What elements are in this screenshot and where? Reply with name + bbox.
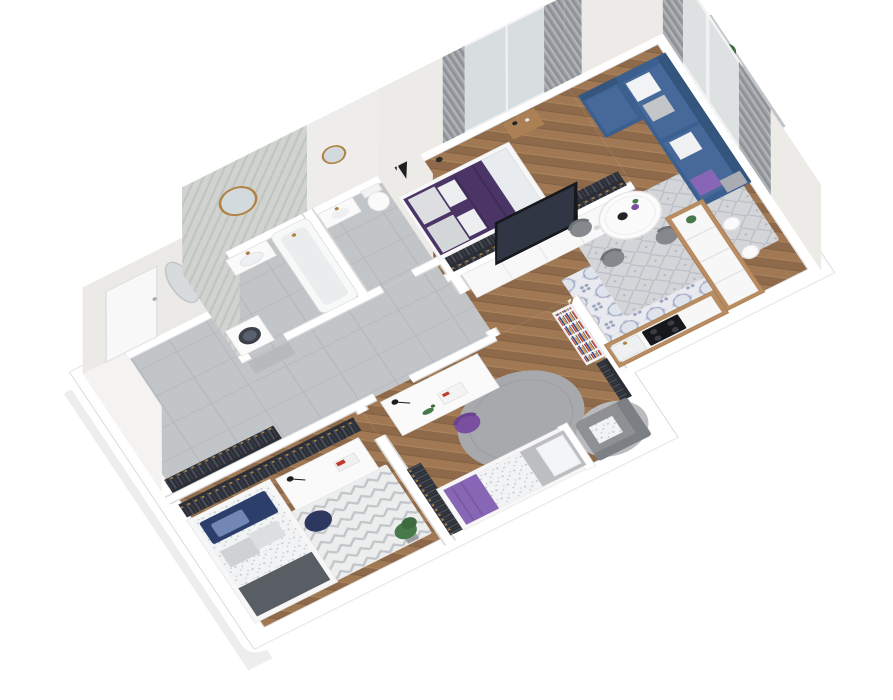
floorplan-render-3d: [0, 0, 893, 700]
floorplan-canvas: [0, 0, 893, 700]
apartment-scene: [8, 0, 893, 649]
